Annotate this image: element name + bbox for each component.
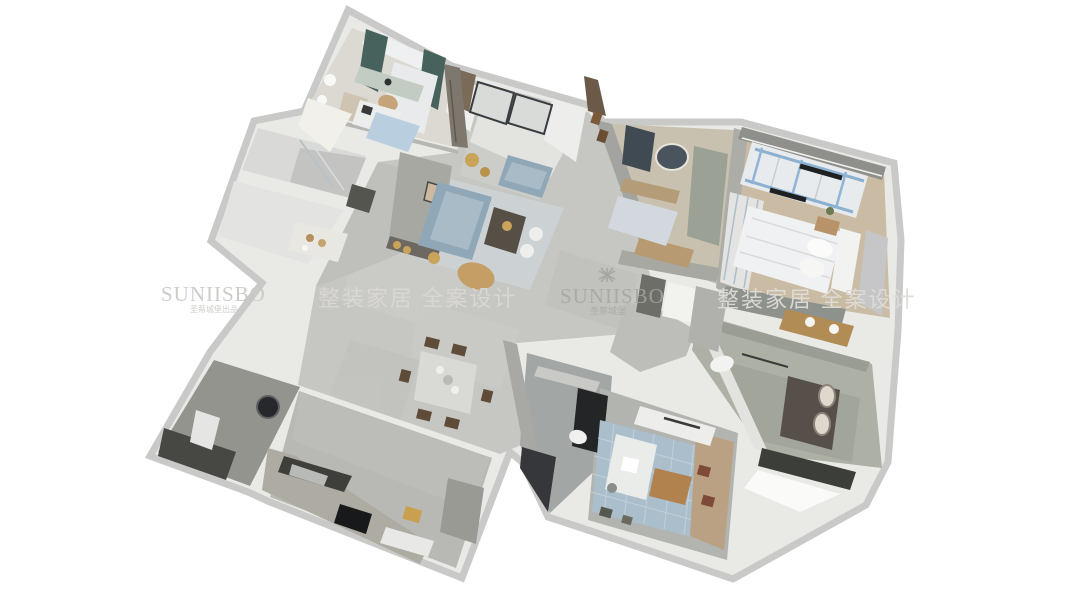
svg-text:SUNIISBO: SUNIISBO [161,282,266,306]
svg-text:SUNIISBO: SUNIISBO [560,284,665,308]
svg-text:圣蒂城堡: 圣蒂城堡 [590,305,626,316]
svg-text:圣蒂城堡出品: 圣蒂城堡出品 [190,304,238,314]
svg-text:整装家居 全案设计: 整装家居 全案设计 [318,286,518,311]
svg-text:整装家居 全案设计: 整装家居 全案设计 [717,287,917,312]
